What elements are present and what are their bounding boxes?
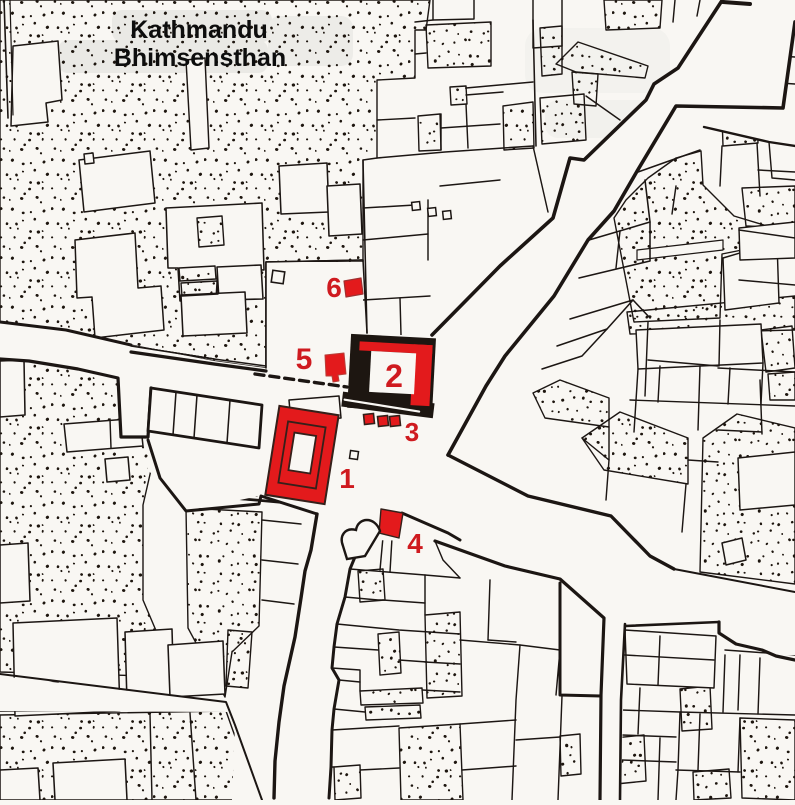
svg-text:6: 6 [326,272,342,303]
svg-text:Kathmandu: Kathmandu [130,16,268,44]
svg-text:3: 3 [405,417,419,447]
svg-text:Bhimsensthan: Bhimsensthan [114,44,286,72]
svg-text:5: 5 [296,343,313,376]
svg-text:1: 1 [339,463,355,494]
svg-text:4: 4 [407,528,423,559]
svg-text:2: 2 [385,358,403,394]
